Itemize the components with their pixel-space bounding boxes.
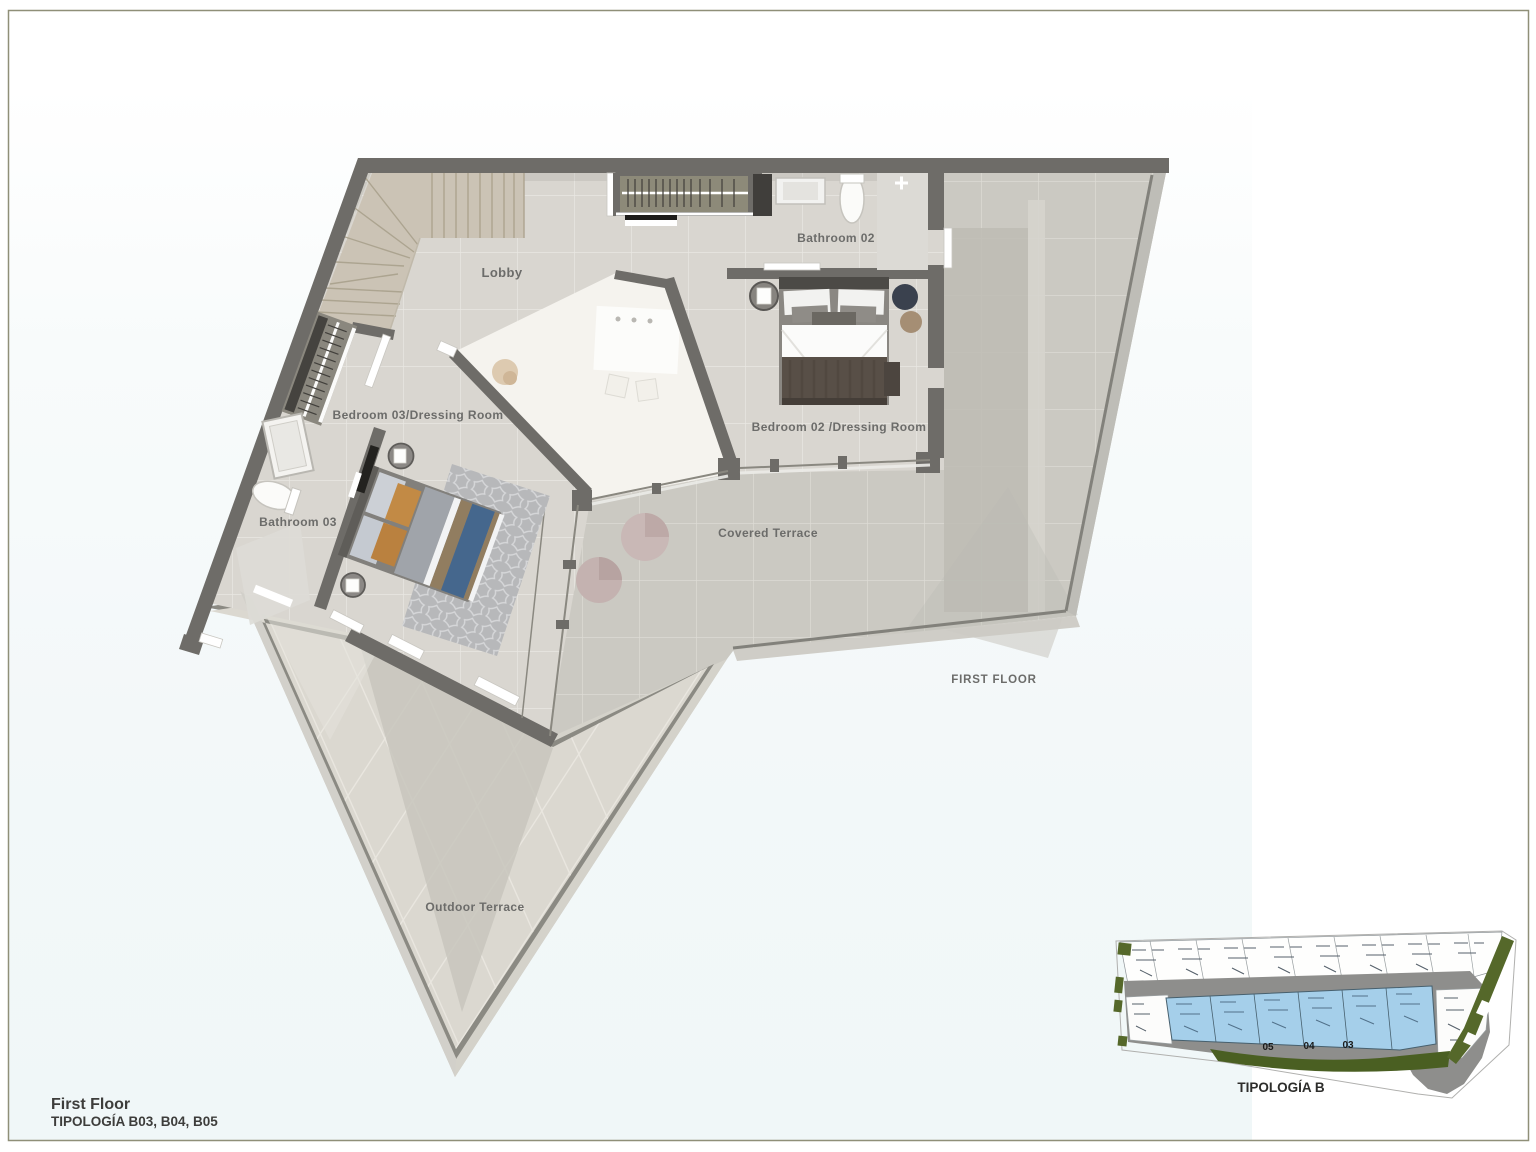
svg-text:Bedroom 02 /Dressing Room: Bedroom 02 /Dressing Room bbox=[752, 420, 927, 434]
svg-text:04: 04 bbox=[1303, 1041, 1315, 1052]
svg-text:Bathroom 03: Bathroom 03 bbox=[259, 515, 337, 529]
svg-text:First Floor: First Floor bbox=[51, 1096, 130, 1113]
svg-text:Bathroom 02: Bathroom 02 bbox=[797, 231, 875, 245]
svg-text:Outdoor Terrace: Outdoor Terrace bbox=[425, 900, 524, 914]
svg-text:05: 05 bbox=[1262, 1042, 1274, 1053]
svg-text:Covered Terrace: Covered Terrace bbox=[718, 526, 818, 540]
svg-text:TIPOLOGÍA B03, B04, B05: TIPOLOGÍA B03, B04, B05 bbox=[51, 1114, 218, 1129]
svg-text:Lobby: Lobby bbox=[482, 265, 523, 280]
svg-text:03: 03 bbox=[1342, 1040, 1354, 1051]
svg-text:Bedroom 03/Dressing Room: Bedroom 03/Dressing Room bbox=[333, 408, 504, 422]
svg-text:FIRST FLOOR: FIRST FLOOR bbox=[951, 674, 1036, 686]
svg-text:TIPOLOGÍA B: TIPOLOGÍA B bbox=[1237, 1080, 1324, 1095]
